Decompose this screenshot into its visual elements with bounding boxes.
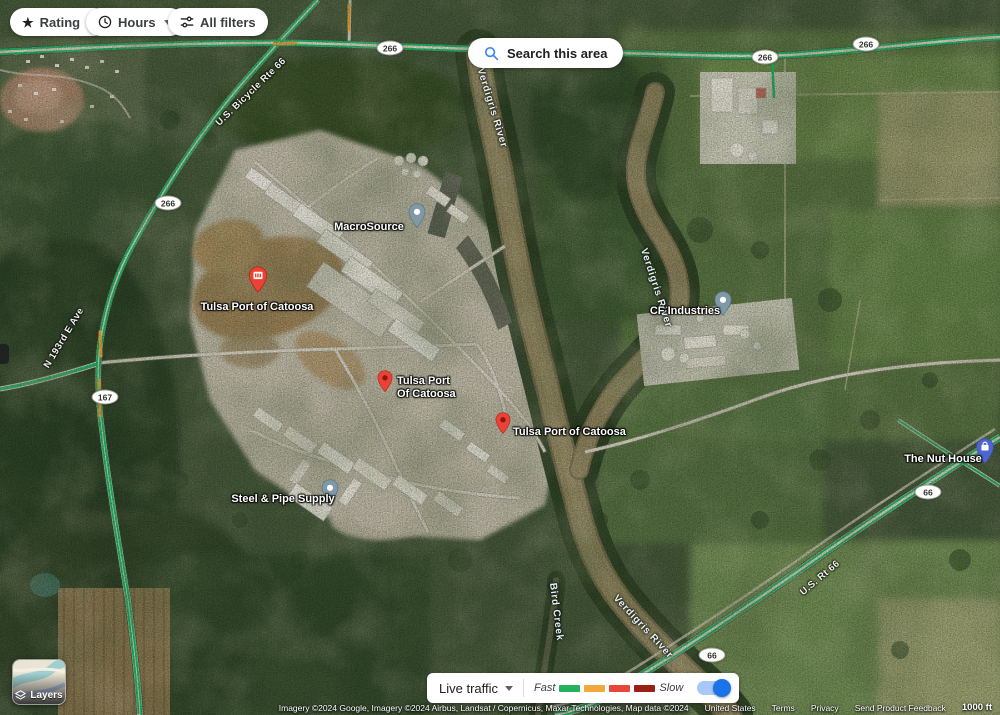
route-shield-167: 167	[92, 390, 119, 405]
tulsa-port-pin-3[interactable]	[495, 412, 512, 440]
tulsa-port-pin-1[interactable]	[248, 266, 269, 299]
star-icon: ★	[22, 16, 34, 29]
scale-label[interactable]: 1000 ft	[962, 702, 992, 713]
country-label: United States	[705, 703, 756, 713]
all-filters-label: All filters	[200, 15, 256, 30]
macrosource-pin[interactable]	[408, 203, 427, 234]
traffic-color-darkred	[634, 685, 655, 692]
tulsa-port-label-3[interactable]: Tulsa Port of Catoosa	[513, 426, 626, 438]
route-shield-266: 266	[377, 41, 404, 56]
traffic-fast-label: Fast	[534, 682, 555, 694]
traffic-color-green	[559, 685, 580, 692]
poi-pin-icon	[408, 203, 427, 229]
live-traffic-dropdown[interactable]: Live traffic	[439, 681, 513, 696]
traffic-color-red	[609, 685, 630, 692]
imagery-credits: Imagery ©2024 Google, Imagery ©2024 Airb…	[279, 703, 689, 713]
traffic-color-yellow	[584, 685, 605, 692]
tulsa-port-label-2-line2: Of Catoosa	[397, 388, 456, 401]
route-shield-66: 66	[699, 648, 726, 663]
macrosource-label[interactable]: MacroSource	[334, 221, 404, 233]
all-filters-button[interactable]: All filters	[168, 8, 268, 36]
live-traffic-label: Live traffic	[439, 681, 498, 696]
live-traffic-bar: Live traffic Fast Slow	[427, 673, 739, 703]
traffic-toggle[interactable]	[697, 681, 729, 695]
route-shield-66: 66	[915, 485, 942, 500]
route-shield-266: 266	[853, 37, 880, 52]
red-poi-pin-icon	[248, 266, 269, 294]
divider	[523, 679, 524, 697]
search-icon	[484, 46, 499, 61]
search-this-area-label: Search this area	[507, 46, 607, 61]
cf-industries-label[interactable]: CF Industries	[650, 305, 720, 317]
traffic-slow-label: Slow	[659, 682, 683, 694]
layers-button[interactable]: Layers	[12, 659, 66, 705]
map-viewport[interactable]: 266 266 266 266 167 66 66 U.S. Bicycle R…	[0, 0, 1000, 715]
tulsa-port-label-1[interactable]: Tulsa Port of Catoosa	[201, 301, 314, 313]
steel-pipe-label[interactable]: Steel & Pipe Supply	[231, 493, 334, 505]
chevron-down-icon	[505, 686, 513, 691]
route-shield-266: 266	[752, 50, 779, 65]
traffic-legend: Fast Slow	[534, 682, 683, 694]
tulsa-port-label-2-line1: Tulsa Port	[397, 375, 456, 388]
attribution-bar: Imagery ©2024 Google, Imagery ©2024 Airb…	[0, 700, 1000, 715]
red-poi-pin-icon	[377, 370, 394, 393]
search-this-area-button[interactable]: Search this area	[468, 38, 623, 68]
tune-icon	[180, 15, 194, 29]
side-panel-handle[interactable]	[0, 344, 9, 364]
satellite-map-canvas[interactable]	[0, 0, 1000, 715]
terms-link[interactable]: Terms	[772, 703, 795, 713]
nut-house-label[interactable]: The Nut House	[904, 453, 982, 465]
privacy-link[interactable]: Privacy	[811, 703, 839, 713]
hours-filter-label: Hours	[118, 15, 156, 30]
route-shield-266: 266	[155, 196, 182, 211]
tulsa-port-pin-2[interactable]	[377, 370, 394, 398]
tulsa-port-label-2[interactable]: Tulsa Port Of Catoosa	[397, 375, 456, 401]
rating-filter-label: Rating	[40, 15, 80, 30]
clock-icon	[98, 15, 112, 29]
red-poi-pin-icon	[495, 412, 512, 435]
toggle-knob	[713, 679, 731, 697]
feedback-link[interactable]: Send Product Feedback	[855, 703, 946, 713]
